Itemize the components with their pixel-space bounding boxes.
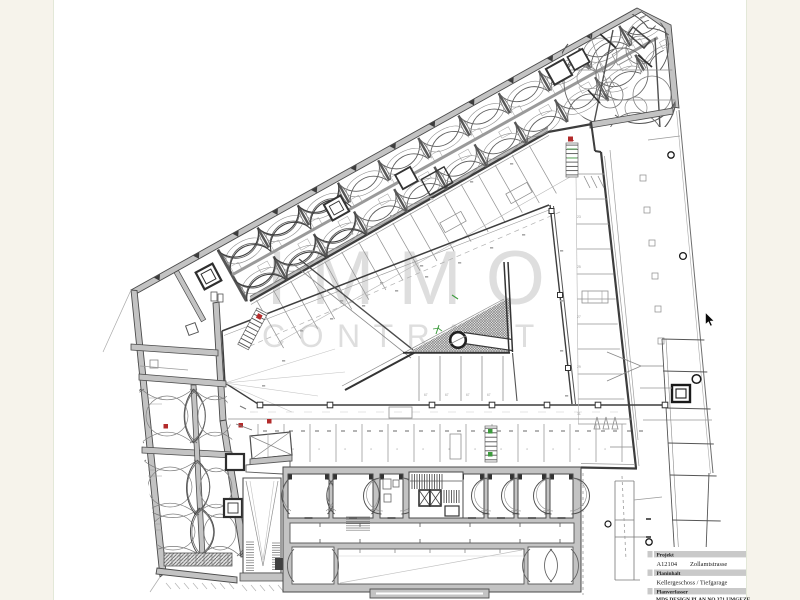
svg-text:67: 67 [424, 393, 428, 397]
svg-text:67: 67 [466, 393, 470, 397]
svg-text:31: 31 [577, 412, 581, 416]
svg-text:67: 67 [487, 393, 491, 397]
svg-text:29: 29 [577, 365, 581, 369]
svg-text:Planverfasser: Planverfasser [657, 589, 689, 595]
svg-text:Planinhalt: Planinhalt [657, 571, 681, 577]
svg-text:Projekt: Projekt [657, 552, 674, 558]
svg-text:25: 25 [577, 265, 581, 269]
svg-text:23: 23 [577, 215, 581, 219]
svg-text:A12104: A12104 [657, 561, 678, 568]
svg-text:27: 27 [577, 315, 581, 319]
svg-text:Zollamtstrasse: Zollamtstrasse [690, 561, 727, 568]
svg-text:67: 67 [445, 393, 449, 397]
svg-text:Kellergeschoss / Tiefgarage: Kellergeschoss / Tiefgarage [657, 579, 728, 586]
